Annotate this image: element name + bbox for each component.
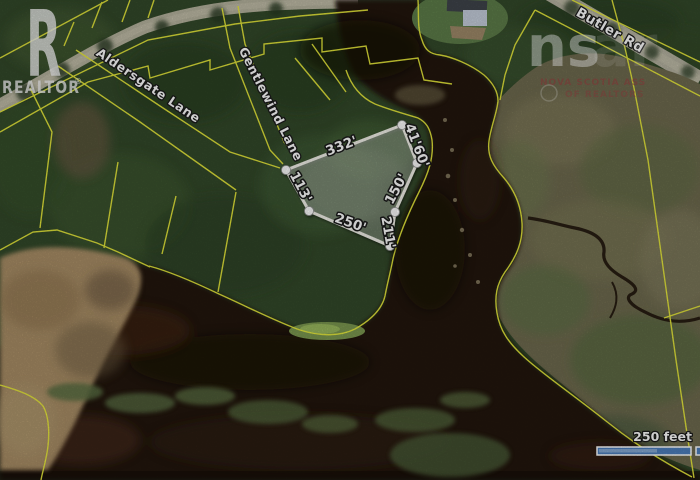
- grain-overlay: [0, 0, 700, 480]
- listing-map-screenshot: 332' 41'60' 150' 211' 250' 113' Aldersga…: [0, 0, 700, 480]
- map-image: 332' 41'60' 150' 211' 250' 113' Aldersga…: [0, 0, 700, 480]
